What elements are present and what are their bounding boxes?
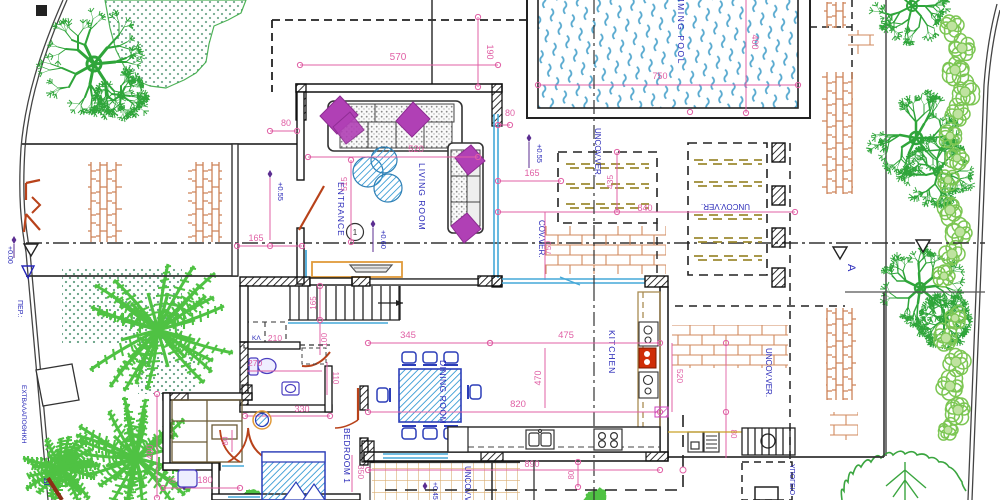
svg-text:80: 80 (221, 436, 230, 445)
svg-text:UNCOV.VER.: UNCOV.VER. (463, 466, 472, 500)
svg-text:1: 1 (353, 228, 358, 237)
svg-text:LIVING ROOM: LIVING ROOM (417, 163, 427, 231)
svg-text:180: 180 (197, 475, 212, 485)
svg-text:400: 400 (750, 34, 760, 49)
svg-text:330: 330 (294, 404, 309, 414)
svg-text:435: 435 (605, 175, 615, 189)
svg-text:25: 25 (168, 478, 176, 485)
svg-text:270: 270 (248, 358, 262, 368)
svg-text:820: 820 (510, 399, 526, 410)
svg-text:750: 750 (652, 71, 667, 81)
svg-text:80: 80 (281, 118, 291, 128)
svg-text:840: 840 (637, 203, 652, 213)
svg-text:475: 475 (558, 330, 574, 341)
svg-text:+0.60: +0.60 (379, 230, 388, 249)
svg-text:210: 210 (268, 333, 282, 343)
svg-text:400: 400 (145, 444, 155, 459)
svg-text:110: 110 (331, 372, 340, 385)
svg-text:UNCOV.VER.: UNCOV.VER. (764, 348, 773, 397)
svg-text:DINING ROOM: DINING ROOM (438, 360, 448, 424)
svg-text:750: 750 (543, 241, 553, 255)
svg-text:520: 520 (408, 144, 424, 155)
svg-text:ΚΛ: ΚΛ (252, 335, 261, 342)
svg-text:470: 470 (533, 370, 543, 385)
svg-text:515: 515 (339, 177, 349, 191)
svg-text:SWIMMING POOL: SWIMMING POOL (676, 0, 686, 65)
svg-text:UNCOV.VER.: UNCOV.VER. (701, 202, 750, 211)
svg-text:ΥΠΟΓΕΙΟ: ΥΠΟΓΕΙΟ (788, 464, 795, 496)
svg-text:A: A (845, 264, 857, 272)
svg-text:BEDROOM 1: BEDROOM 1 (342, 428, 352, 484)
svg-text:165: 165 (309, 296, 318, 310)
svg-text:190: 190 (485, 44, 495, 59)
svg-text:570: 570 (390, 52, 407, 63)
svg-text:ΕΧΤΒΑΛΑΠΟΘΗΚΗ: ΕΧΤΒΑΛΑΠΟΘΗΚΗ (20, 385, 27, 444)
svg-text:350: 350 (356, 465, 366, 479)
svg-text:345: 345 (400, 330, 416, 341)
svg-text:80: 80 (505, 108, 515, 118)
svg-text:80: 80 (729, 430, 738, 439)
svg-text:520: 520 (675, 369, 685, 383)
svg-text:+0.00: +0.00 (6, 246, 13, 264)
svg-text:165: 165 (248, 233, 263, 243)
svg-text:+0.55: +0.55 (535, 144, 544, 163)
svg-text:KITCHEN: KITCHEN (607, 330, 617, 374)
svg-text:890: 890 (524, 459, 539, 469)
svg-text:80: 80 (567, 470, 576, 479)
svg-text:+0.55: +0.55 (276, 182, 285, 201)
svg-text:165: 165 (524, 168, 539, 178)
svg-text:ΠΕΡ.:: ΠΕΡ.: (16, 300, 23, 317)
